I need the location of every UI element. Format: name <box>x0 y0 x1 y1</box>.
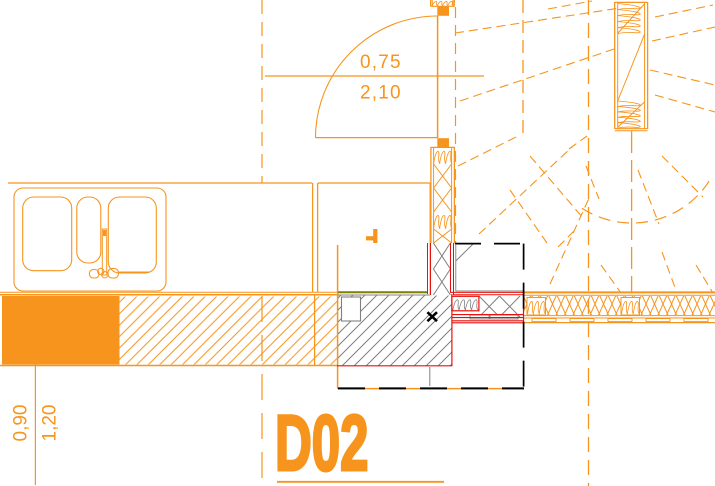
svg-text:1,20: 1,20 <box>40 405 61 442</box>
svg-text:D02: D02 <box>275 400 368 486</box>
svg-text:0,90: 0,90 <box>11 405 32 442</box>
svg-text:2,10: 2,10 <box>360 83 402 104</box>
svg-text:0,75: 0,75 <box>360 52 402 73</box>
